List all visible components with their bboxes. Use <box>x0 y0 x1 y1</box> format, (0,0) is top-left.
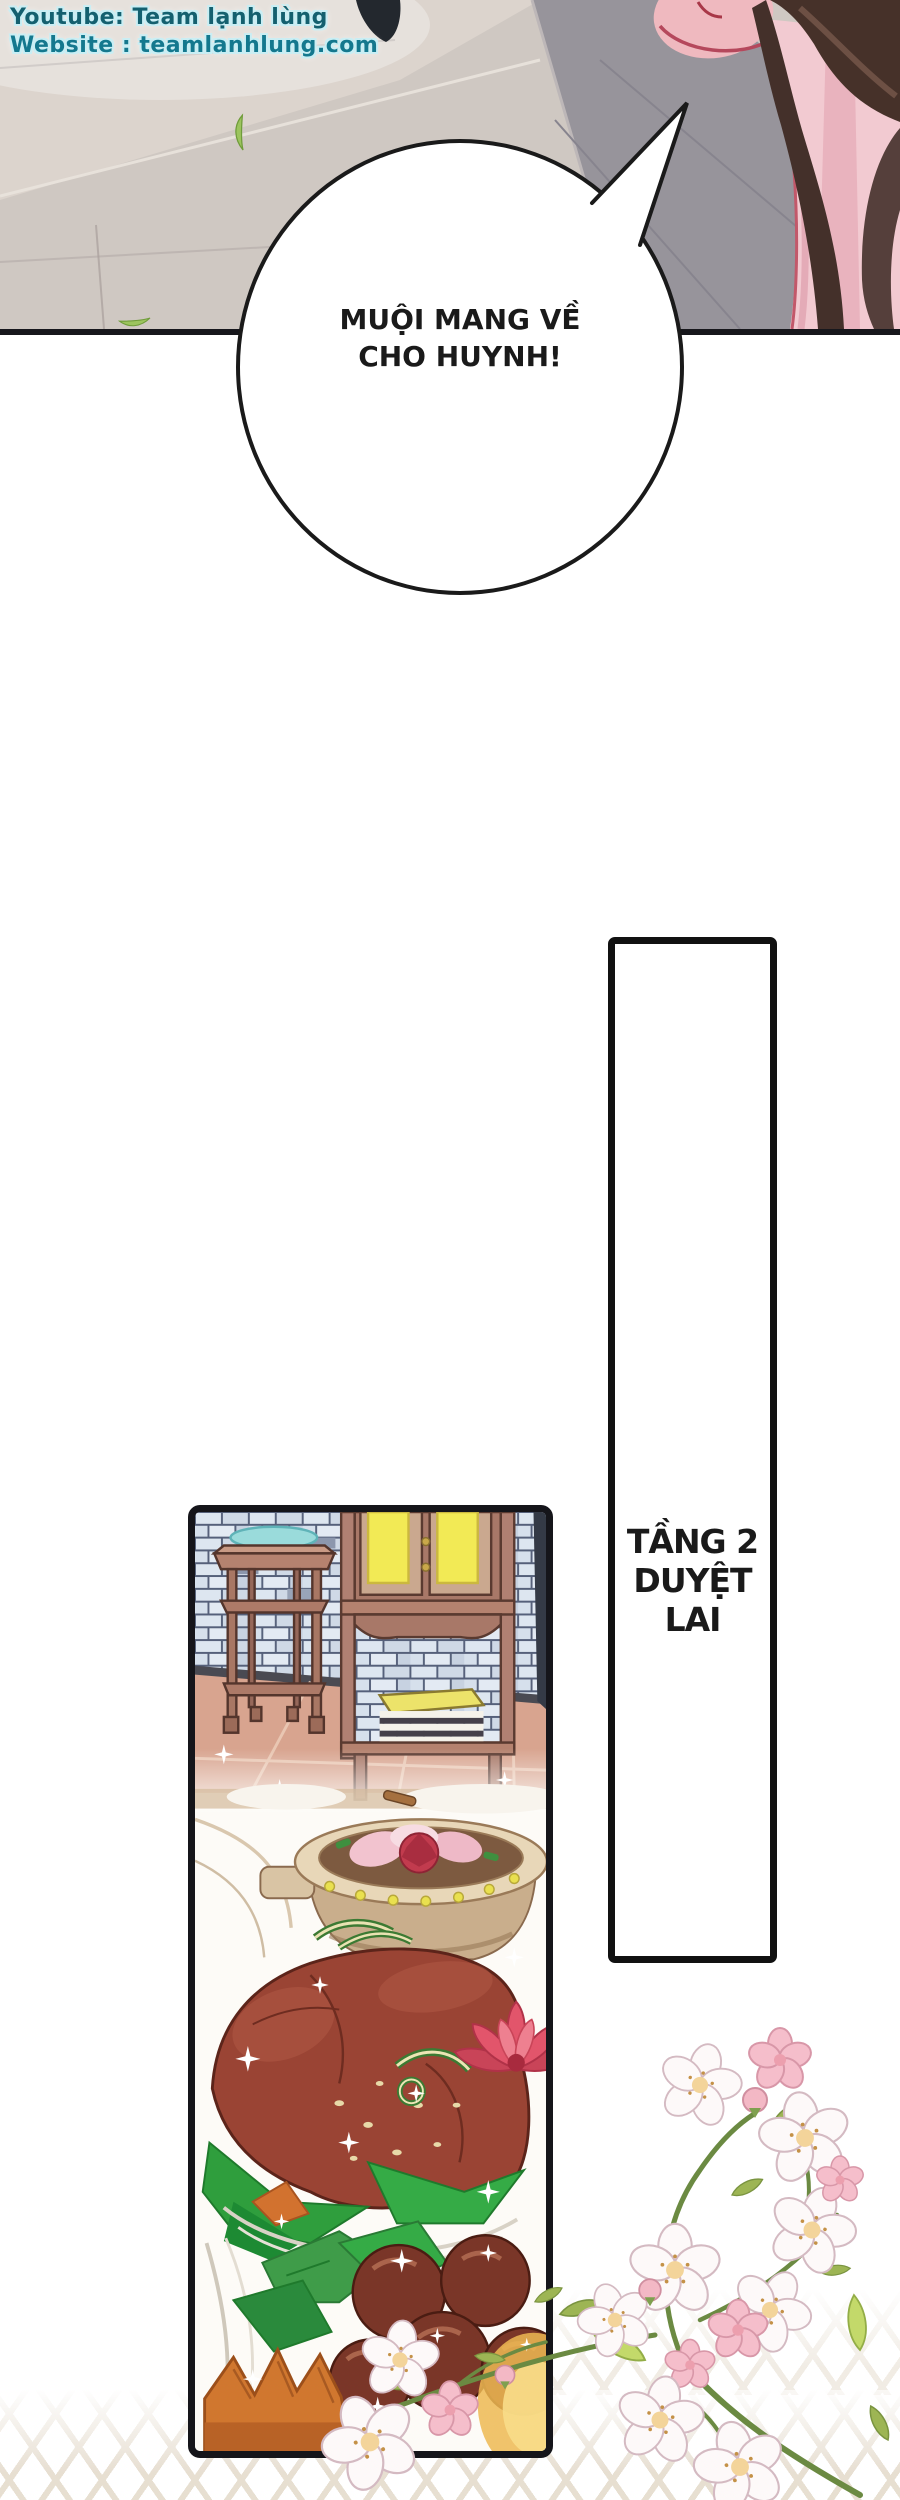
caption-line-1: TẦNG 2 <box>615 1522 770 1561</box>
watermark: Youtube: Team lạnh lùng Website : teamla… <box>10 4 378 60</box>
speech-line-1: MUỘI MANG VỀ <box>240 301 680 338</box>
caption-line-3: LAI <box>615 1600 770 1639</box>
speech-line-2: CHO HUYNH! <box>240 338 680 375</box>
blossom-branch-illustration <box>300 2020 900 2500</box>
speech-bubble-tail <box>555 90 700 260</box>
caption-box: TẦNG 2 DUYỆT LAI <box>608 937 777 1963</box>
watermark-youtube: Youtube: Team lạnh lùng <box>10 4 378 32</box>
comic-page: Youtube: Team lạnh lùng Website : teamla… <box>0 0 900 2500</box>
watermark-website: Website : teamlanhlung.com <box>10 32 378 60</box>
caption-line-2: DUYỆT <box>615 1561 770 1600</box>
lit-window <box>437 1512 477 1583</box>
caption-text: TẦNG 2 DUYỆT LAI <box>615 944 770 1639</box>
lit-window <box>368 1512 408 1583</box>
